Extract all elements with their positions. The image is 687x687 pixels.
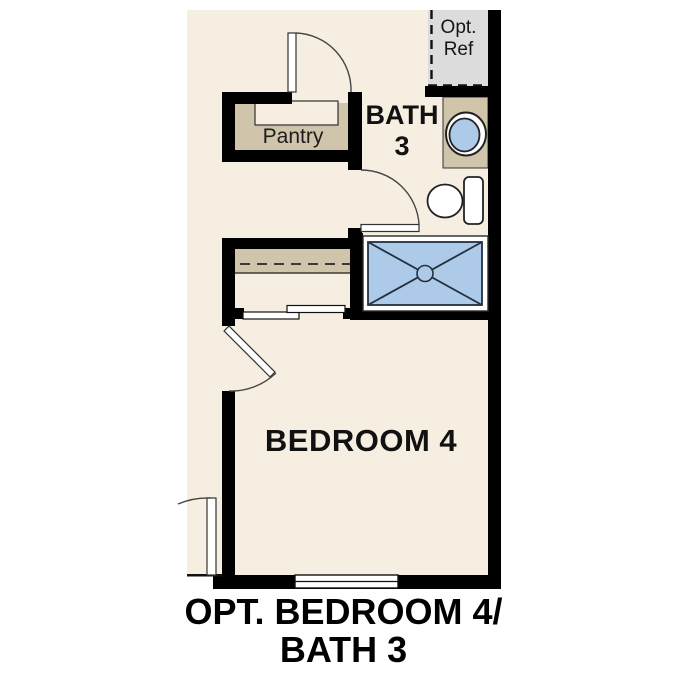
- wall: [222, 391, 235, 577]
- bath-label-line1: BATH: [366, 100, 439, 130]
- sliding-door: [287, 306, 345, 313]
- floor-plan: Pantry BATH3 BEDROOM 4 Opt.Ref OPT. BEDR…: [0, 0, 687, 687]
- bedroom-room-label: BEDROOM 4: [240, 425, 482, 457]
- wall: [222, 150, 362, 162]
- wall: [350, 233, 363, 320]
- floor-plan-drawing: [0, 0, 687, 687]
- wall: [222, 308, 244, 319]
- toilet-bowl-icon: [428, 185, 463, 218]
- opt-ref-line1: Opt.: [441, 17, 477, 38]
- wall: [488, 10, 501, 589]
- shower-drain-icon: [417, 266, 433, 282]
- sink-basin-icon: [450, 119, 480, 152]
- bath-label-line2: 3: [394, 131, 409, 161]
- wall: [222, 238, 354, 249]
- door-leaf: [207, 498, 216, 575]
- closet-shelf: [233, 248, 353, 273]
- cut-wall-line: [187, 574, 222, 577]
- caption-line1: OPT. BEDROOM 4/: [184, 591, 502, 632]
- toilet-tank: [464, 177, 483, 224]
- opt-ref-line2: Ref: [444, 39, 474, 60]
- bath-room-label: BATH3: [358, 100, 446, 162]
- door-leaf: [361, 225, 419, 232]
- opt-ref-label: Opt.Ref: [428, 17, 489, 61]
- caption-line2: BATH 3: [280, 629, 407, 670]
- door-leaf: [288, 33, 296, 92]
- wall: [350, 311, 488, 320]
- pantry-room-label: Pantry: [253, 126, 333, 148]
- wall: [425, 86, 488, 97]
- pantry-walkway-notch: [255, 101, 338, 125]
- plan-caption: OPT. BEDROOM 4/BATH 3: [0, 593, 687, 669]
